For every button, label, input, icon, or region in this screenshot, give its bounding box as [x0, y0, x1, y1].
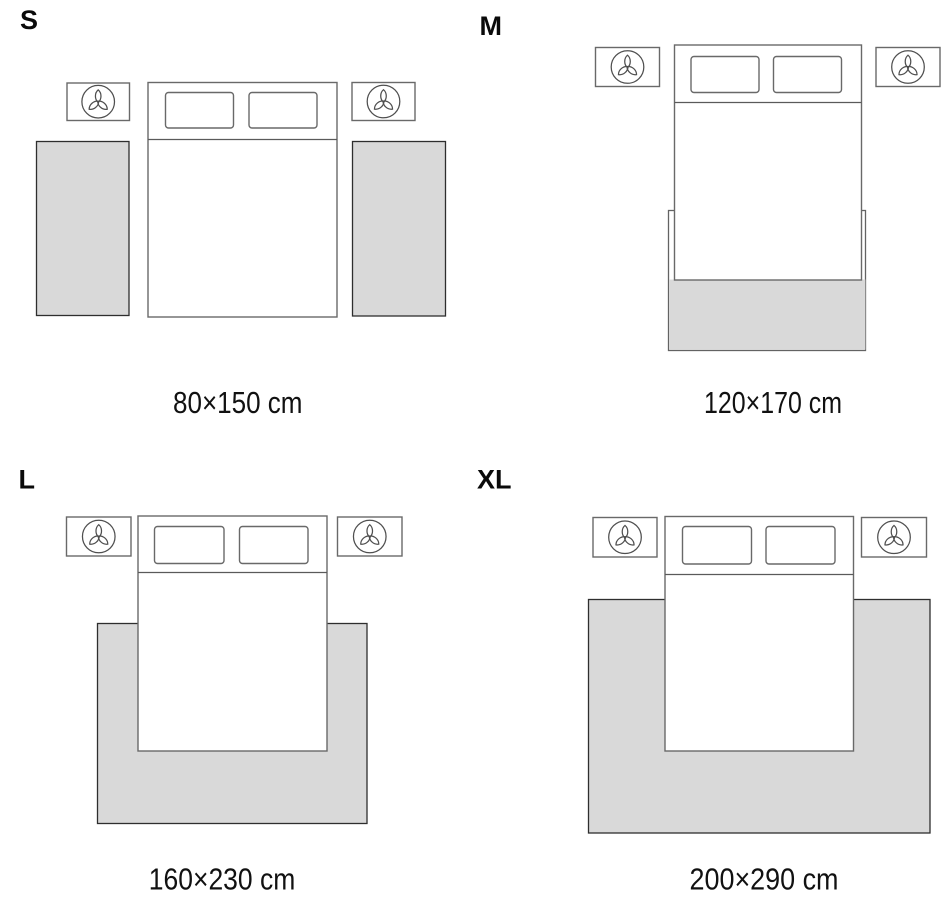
svg-text:160×230 cm: 160×230 cm	[149, 863, 295, 897]
svg-text:XL: XL	[477, 465, 512, 495]
svg-text:80×150 cm: 80×150 cm	[173, 386, 303, 420]
svg-text:L: L	[19, 465, 36, 495]
svg-text:120×170 cm: 120×170 cm	[704, 386, 842, 420]
svg-text:M: M	[480, 11, 503, 41]
svg-text:S: S	[20, 5, 38, 35]
svg-text:200×290 cm: 200×290 cm	[690, 863, 839, 897]
